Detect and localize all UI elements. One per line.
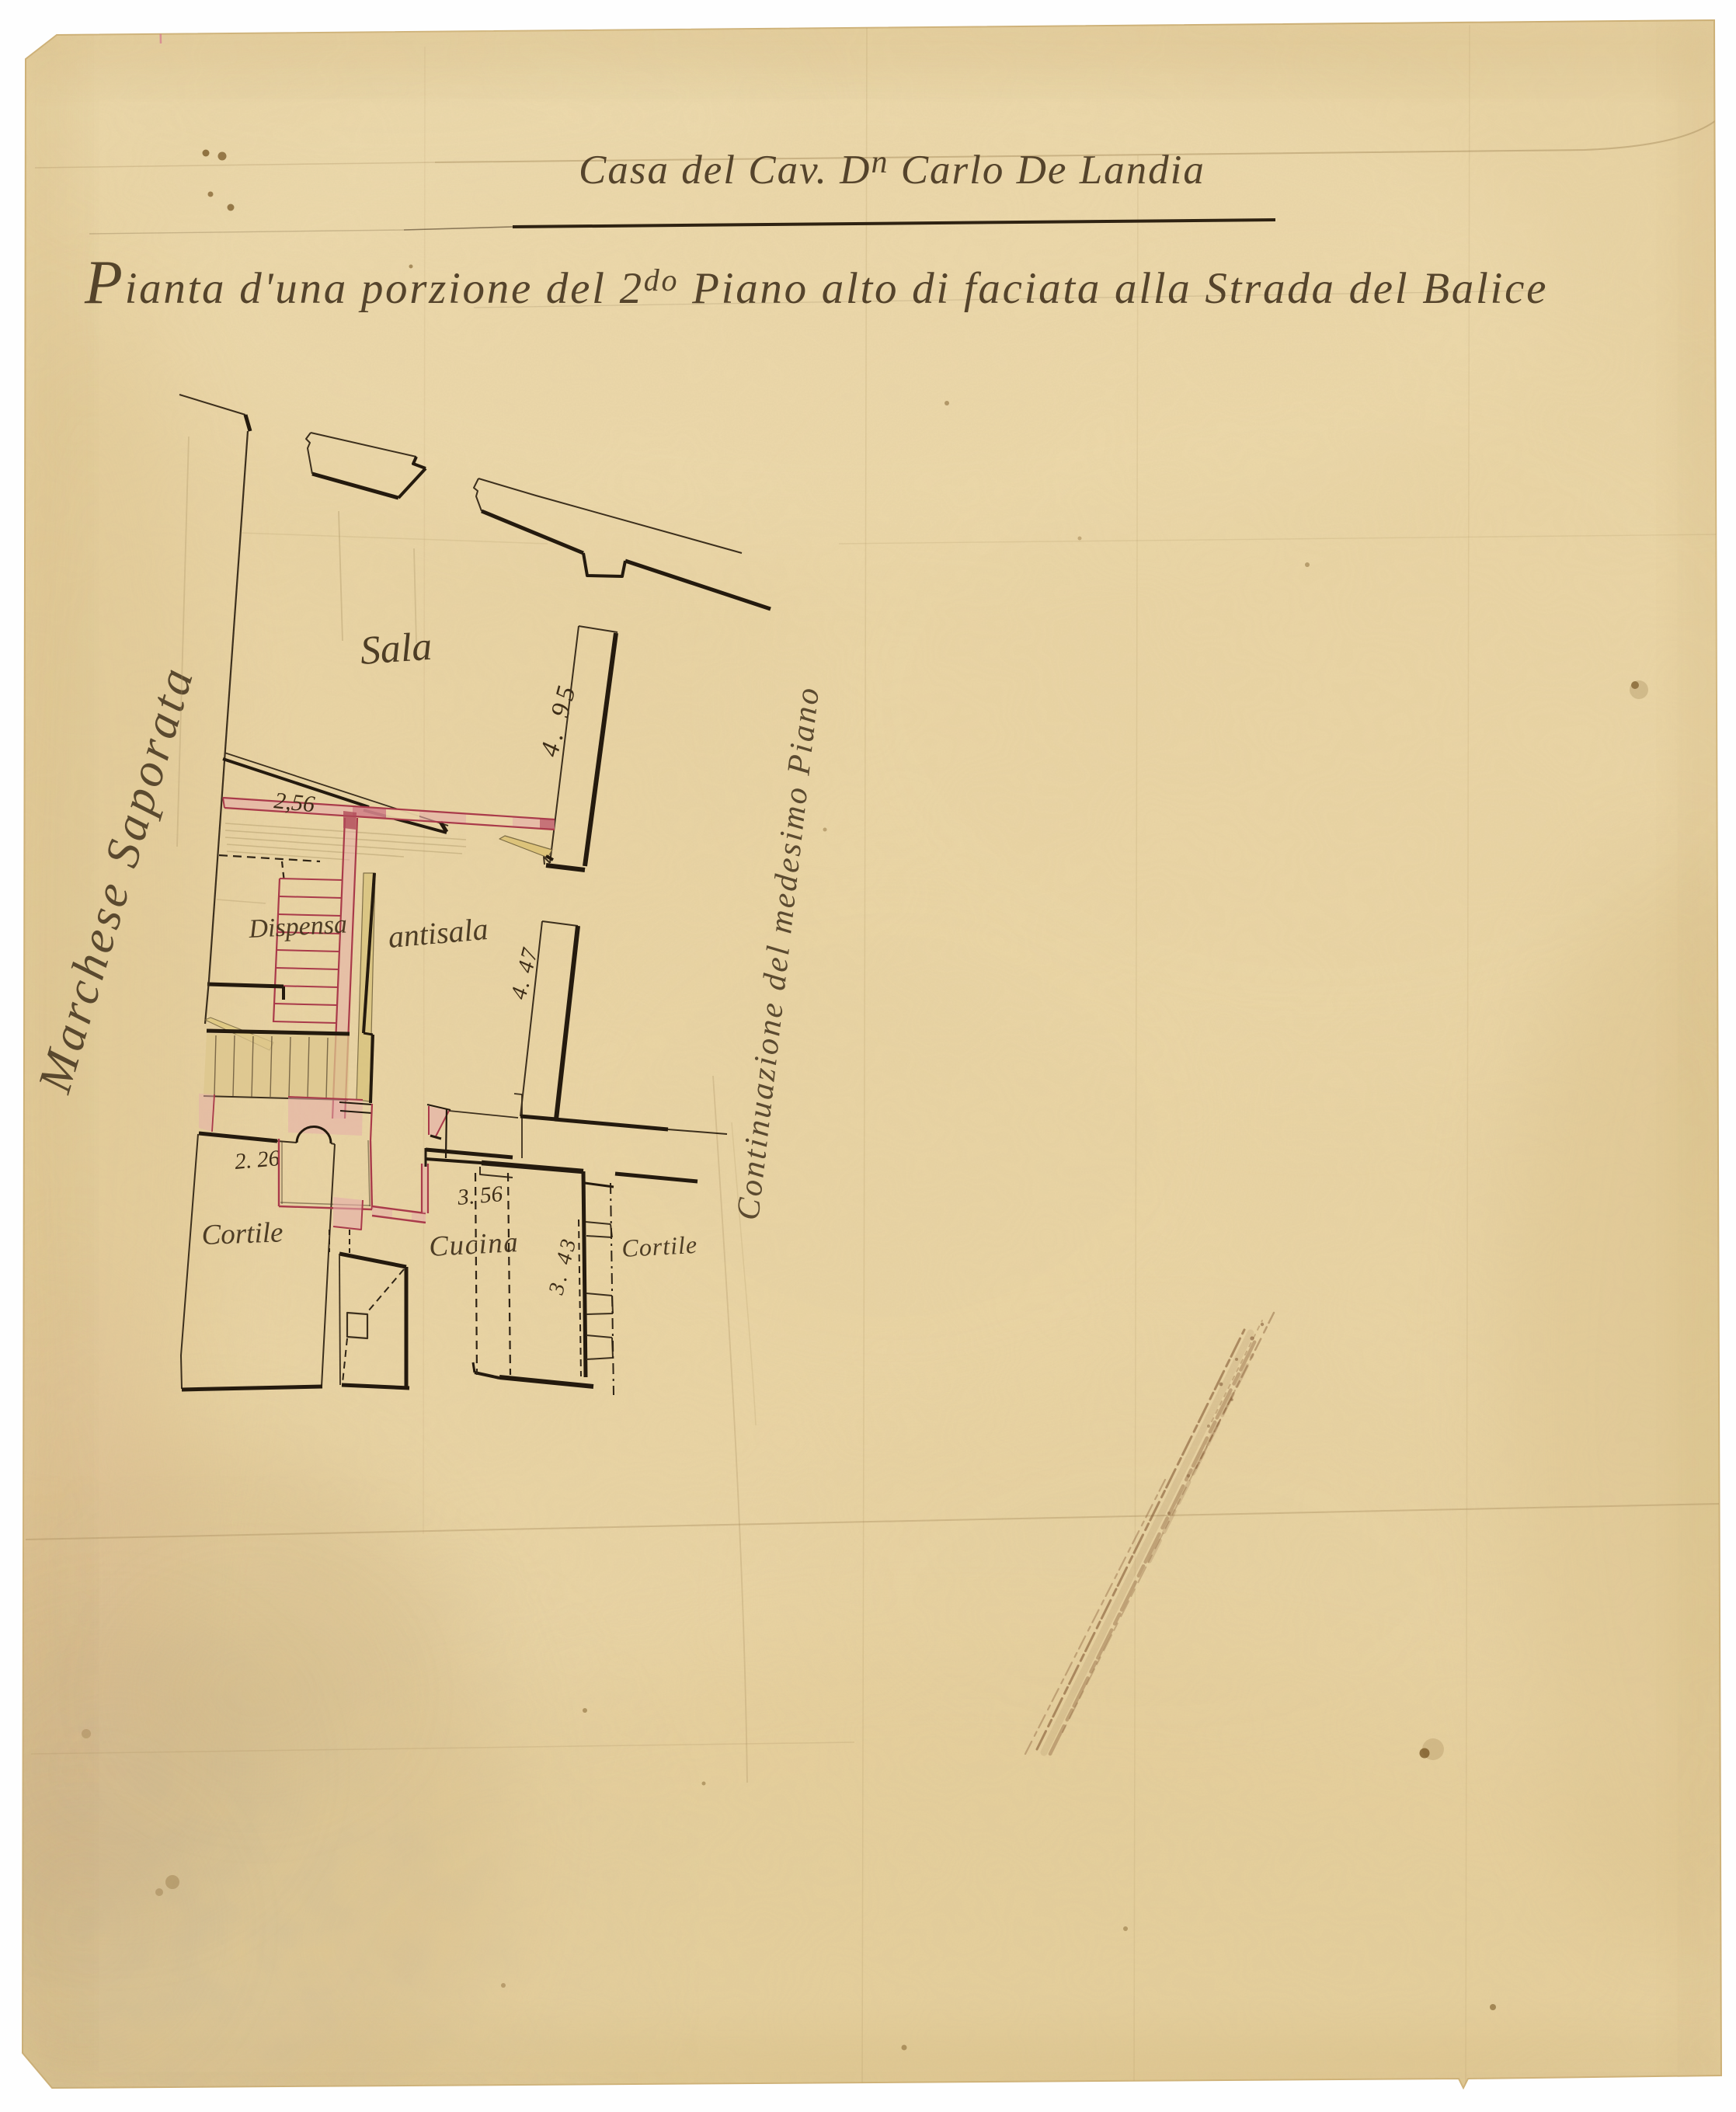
svg-text:Casa del Cav. Dn Carlo De Lan: Casa del Cav. Dn Carlo De Landia xyxy=(579,144,1205,193)
svg-text:Cucina: Cucina xyxy=(428,1226,520,1263)
svg-text:2. 26: 2. 26 xyxy=(234,1146,281,1174)
svg-text:2,56: 2,56 xyxy=(273,788,316,817)
svg-text:Cortile: Cortile xyxy=(201,1216,284,1251)
svg-text:Sala: Sala xyxy=(359,625,433,673)
svg-text:Dispensa: Dispensa xyxy=(247,910,347,944)
svg-text:Cortile: Cortile xyxy=(621,1230,698,1262)
svg-text:3. 56: 3. 56 xyxy=(456,1181,504,1210)
